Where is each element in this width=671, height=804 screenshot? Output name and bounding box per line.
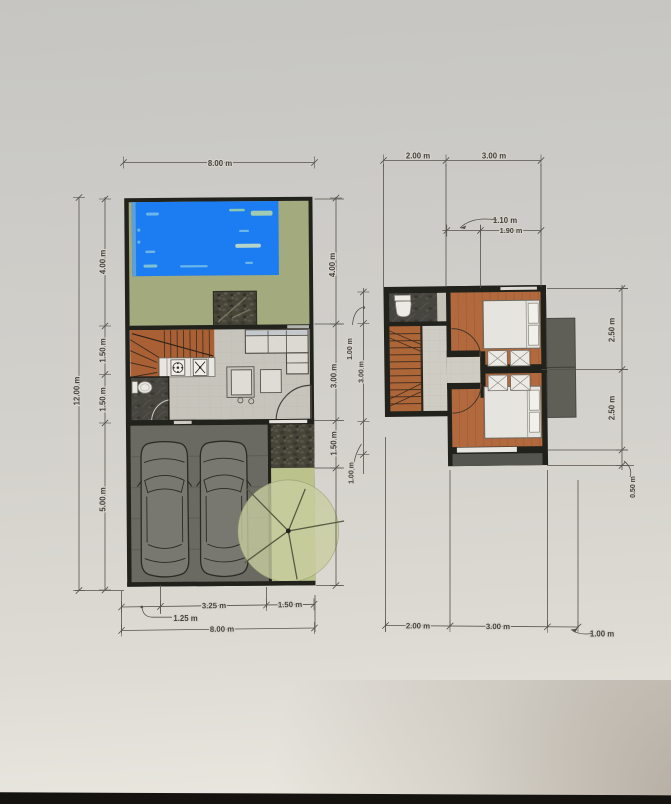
svg-text:3.00 m: 3.00 m [486,622,510,631]
svg-text:4.00 m: 4.00 m [328,253,337,277]
svg-text:1.90 m: 1.90 m [500,226,523,235]
svg-text:1.25 m: 1.25 m [173,614,197,623]
svg-text:0.50 m: 0.50 m [630,476,637,498]
svg-text:1.50 m: 1.50 m [278,600,302,609]
svg-text:2.50 m: 2.50 m [608,318,617,342]
svg-text:8.00 m: 8.00 m [208,159,232,168]
svg-text:8.00 m: 8.00 m [210,625,234,634]
svg-text:2.00 m: 2.00 m [406,151,430,160]
svg-text:3.00 m: 3.00 m [358,361,365,383]
svg-text:5.00 m: 5.00 m [99,487,108,511]
svg-text:1.00 m: 1.00 m [349,462,356,484]
svg-text:1.10 m: 1.10 m [493,216,517,225]
svg-text:2.50 m: 2.50 m [608,396,617,420]
svg-text:3.00 m: 3.00 m [330,364,339,388]
svg-text:3.00 m: 3.00 m [482,151,506,160]
svg-text:3.25 m: 3.25 m [202,601,226,610]
svg-text:1.00 m: 1.00 m [347,338,354,360]
svg-text:1.50 m: 1.50 m [99,338,108,362]
svg-text:12.00 m: 12.00 m [73,377,82,406]
svg-text:2.00 m: 2.00 m [406,621,430,630]
svg-text:1.50 m: 1.50 m [99,387,108,411]
svg-text:4.00 m: 4.00 m [99,250,108,274]
svg-text:1.00 m: 1.00 m [590,630,614,639]
svg-text:1.50 m: 1.50 m [330,431,339,455]
